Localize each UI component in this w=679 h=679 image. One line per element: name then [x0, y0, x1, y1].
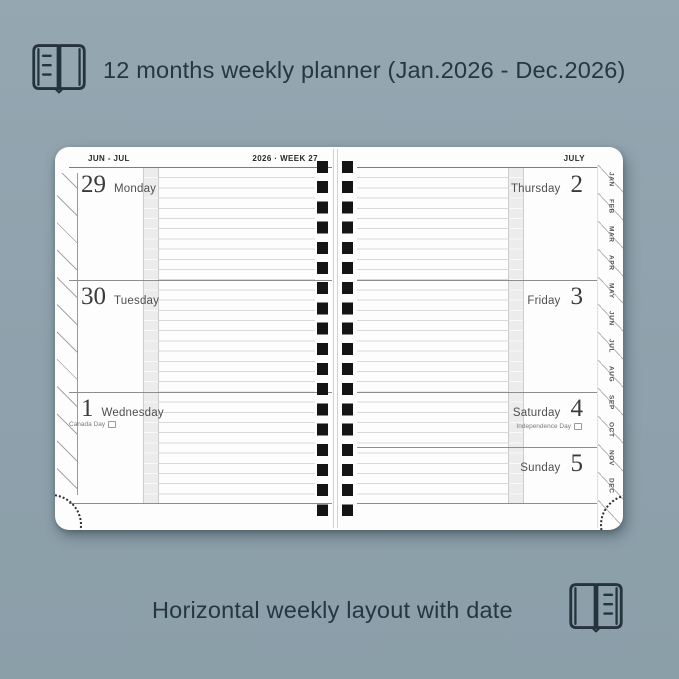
date-cell-saturday: Saturday 4 — [485, 396, 590, 421]
bottom-caption: Horizontal weekly layout with date — [152, 597, 513, 624]
page-edge-hatch — [57, 173, 78, 495]
date-cell-wednesday: 1 Wednesday — [81, 396, 164, 421]
month-tab-oct: OCT — [598, 416, 623, 444]
day-name-label: Monday — [114, 183, 156, 195]
month-tab-label: FEB — [608, 199, 615, 214]
left-page-month-range: JUN - JUL — [88, 154, 130, 163]
page-gutter — [333, 149, 334, 528]
day-name-label: Thursday — [511, 183, 561, 195]
month-tab-jul: JUL — [598, 332, 623, 360]
spiral-binding — [342, 161, 353, 516]
date-cell-friday: Friday 3 — [485, 284, 590, 309]
right-bottom-rule — [357, 503, 597, 504]
shaded-column-left-page — [143, 168, 159, 503]
month-tab-nov: NOV — [598, 444, 623, 472]
date-number: 29 — [81, 172, 106, 197]
month-tab-jan: JAN — [598, 165, 623, 193]
month-tab-label: OCT — [608, 422, 615, 438]
right-divider-saturday — [357, 392, 597, 393]
date-cell-sunday: Sunday 5 — [485, 451, 590, 476]
month-tab-label: JUL — [608, 339, 615, 353]
month-tab-label: JAN — [608, 172, 615, 187]
date-number: 3 — [571, 284, 584, 309]
left-divider-tuesday — [69, 280, 332, 281]
left-divider-wednesday — [69, 392, 332, 393]
month-tab-sep: SEP — [598, 388, 623, 416]
date-number: 30 — [81, 284, 106, 309]
month-tab-feb: FEB — [598, 193, 623, 221]
month-tab-label: NOV — [608, 450, 615, 466]
month-tab-label: MAY — [608, 283, 615, 299]
month-tab-label: APR — [608, 255, 615, 271]
planner-spread: JUN - JUL 2026 · WEEK 27 JULY 29 Monday … — [55, 147, 623, 530]
month-tab-label: JUN — [608, 311, 615, 326]
date-number: 4 — [571, 396, 584, 421]
holiday-label-canada-day: Canada Day — [69, 421, 116, 428]
date-number: 1 — [81, 396, 94, 421]
month-tab-apr: APR — [598, 249, 623, 277]
flag-box-icon — [574, 423, 582, 430]
date-number: 2 — [571, 172, 584, 197]
spiral-binding — [317, 161, 328, 516]
right-divider-friday — [357, 280, 597, 281]
corner-perforation-left — [55, 494, 82, 530]
month-tab-label: AUG — [608, 366, 615, 382]
open-book-icon — [29, 39, 89, 97]
right-page-month-label: JULY — [485, 154, 585, 163]
day-name-label: Wednesday — [102, 407, 164, 419]
day-name-label: Tuesday — [114, 295, 159, 307]
month-tab-may: MAY — [598, 277, 623, 305]
holiday-label-independence-day: Independence Day — [485, 423, 590, 430]
date-cell-tuesday: 30 Tuesday — [81, 284, 159, 309]
date-cell-monday: 29 Monday — [81, 172, 156, 197]
month-tab-label: DEC — [608, 478, 615, 494]
date-cell-thursday: Thursday 2 — [485, 172, 590, 197]
week-number-label: 2026 · WEEK 27 — [208, 154, 318, 163]
month-tab-label: SEP — [608, 395, 615, 410]
day-name-label: Friday — [527, 295, 560, 307]
day-name-label: Sunday — [520, 462, 560, 474]
month-tab-label: MAR — [608, 226, 615, 243]
date-number: 5 — [571, 451, 584, 476]
top-caption: 12 months weekly planner (Jan.2026 - Dec… — [103, 57, 626, 84]
open-book-icon — [566, 578, 626, 636]
notes-area-left-page — [159, 168, 315, 503]
left-bottom-rule — [69, 503, 332, 504]
month-tab-strip: JANFEBMARAPRMAYJUNJULAUGSEPOCTNOVDEC — [597, 165, 623, 528]
day-name-label: Saturday — [513, 407, 561, 419]
month-tab-aug: AUG — [598, 360, 623, 388]
holiday-text: Independence Day — [516, 423, 571, 430]
flag-box-icon — [108, 421, 116, 428]
right-divider-sunday — [357, 447, 597, 448]
month-tab-mar: MAR — [598, 221, 623, 249]
month-tab-jun: JUN — [598, 304, 623, 332]
holiday-text: Canada Day — [69, 421, 105, 428]
page-gutter — [337, 149, 338, 528]
